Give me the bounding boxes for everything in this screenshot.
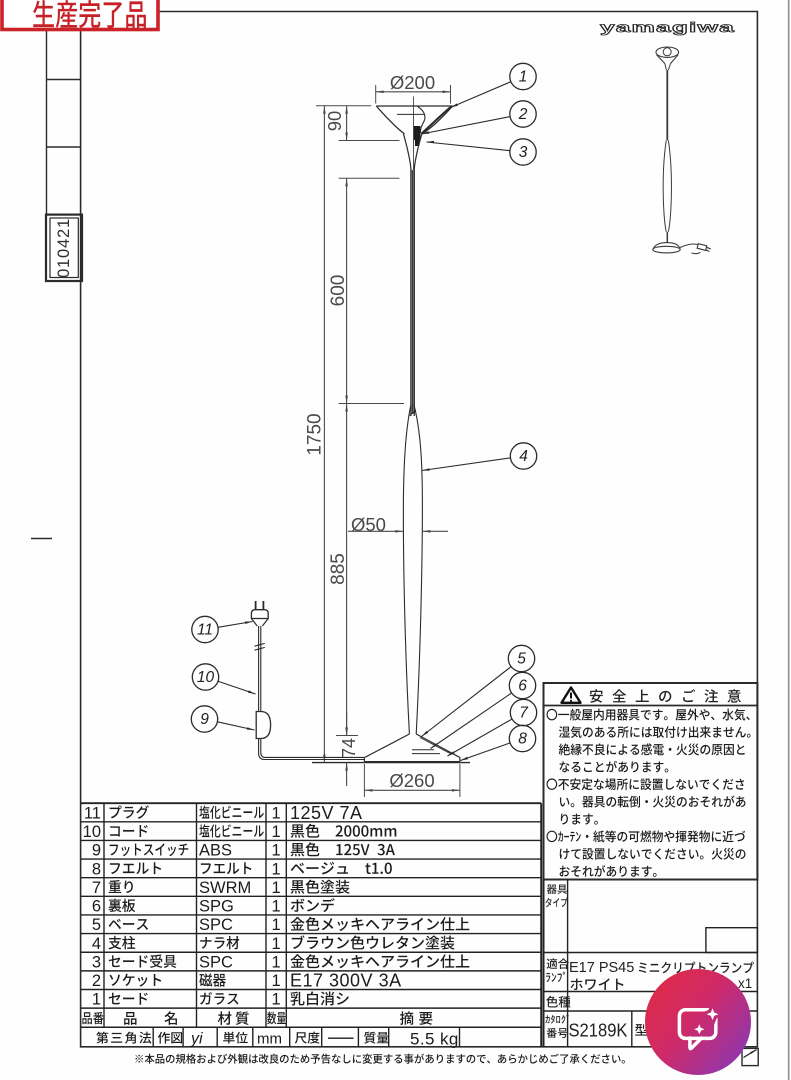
svg-text:5: 5 bbox=[517, 651, 526, 668]
svg-text:SPG: SPG bbox=[199, 898, 234, 916]
svg-text:1: 1 bbox=[272, 916, 281, 934]
svg-text:3: 3 bbox=[519, 144, 528, 161]
svg-text:885: 885 bbox=[328, 553, 349, 585]
svg-text:5.5 kg: 5.5 kg bbox=[410, 1030, 459, 1049]
svg-text:10: 10 bbox=[83, 823, 101, 841]
svg-text:E17 300V 3A: E17 300V 3A bbox=[290, 971, 402, 991]
svg-text:8: 8 bbox=[92, 860, 101, 878]
svg-text:1: 1 bbox=[272, 860, 281, 878]
svg-text:1: 1 bbox=[272, 935, 281, 953]
svg-text:ABS: ABS bbox=[199, 842, 232, 860]
svg-text:10: 10 bbox=[197, 669, 215, 686]
svg-text:4: 4 bbox=[92, 935, 101, 953]
svg-text:9: 9 bbox=[200, 711, 209, 728]
svg-text:5: 5 bbox=[92, 916, 101, 934]
svg-text:SPC: SPC bbox=[199, 953, 233, 971]
svg-text:010421: 010421 bbox=[55, 218, 73, 278]
svg-text:S2189K: S2189K bbox=[569, 1020, 629, 1041]
svg-text:90: 90 bbox=[324, 111, 345, 132]
svg-text:6: 6 bbox=[92, 898, 101, 916]
svg-text:yamagiwa: yamagiwa bbox=[600, 20, 735, 35]
svg-text:1: 1 bbox=[272, 823, 281, 841]
svg-text:6: 6 bbox=[518, 678, 527, 695]
svg-text:2: 2 bbox=[92, 972, 101, 990]
svg-text:x1: x1 bbox=[738, 976, 752, 991]
svg-text:7: 7 bbox=[92, 879, 101, 897]
svg-text:SPC: SPC bbox=[199, 916, 233, 934]
svg-text:mm: mm bbox=[257, 1031, 282, 1048]
svg-text:1: 1 bbox=[272, 804, 281, 822]
svg-text:7: 7 bbox=[519, 705, 529, 722]
svg-text:11: 11 bbox=[197, 622, 213, 639]
svg-text:1: 1 bbox=[272, 953, 281, 971]
svg-text:1: 1 bbox=[272, 972, 281, 990]
svg-text:yi: yi bbox=[190, 1031, 203, 1048]
svg-text:1: 1 bbox=[272, 879, 281, 897]
svg-text:1: 1 bbox=[272, 842, 281, 860]
svg-text:2: 2 bbox=[518, 106, 528, 123]
svg-text:1750: 1750 bbox=[305, 413, 326, 455]
svg-text:3: 3 bbox=[92, 953, 101, 971]
svg-text:1: 1 bbox=[272, 898, 281, 916]
svg-text:9: 9 bbox=[92, 842, 101, 860]
svg-text:1: 1 bbox=[92, 991, 101, 1009]
svg-text:74: 74 bbox=[339, 738, 359, 758]
svg-text:4: 4 bbox=[519, 448, 528, 465]
svg-text:Ø260: Ø260 bbox=[389, 770, 434, 791]
svg-text:11: 11 bbox=[84, 804, 101, 822]
svg-text:Ø200: Ø200 bbox=[390, 72, 435, 93]
svg-text:1: 1 bbox=[272, 991, 281, 1009]
svg-text:600: 600 bbox=[328, 275, 349, 307]
svg-text:1: 1 bbox=[519, 69, 528, 86]
svg-text:8: 8 bbox=[518, 731, 527, 748]
svg-text:125V 7A: 125V 7A bbox=[290, 803, 363, 823]
svg-text:E17 PS45: E17 PS45 bbox=[569, 960, 634, 976]
svg-text:SWRM: SWRM bbox=[199, 879, 251, 897]
